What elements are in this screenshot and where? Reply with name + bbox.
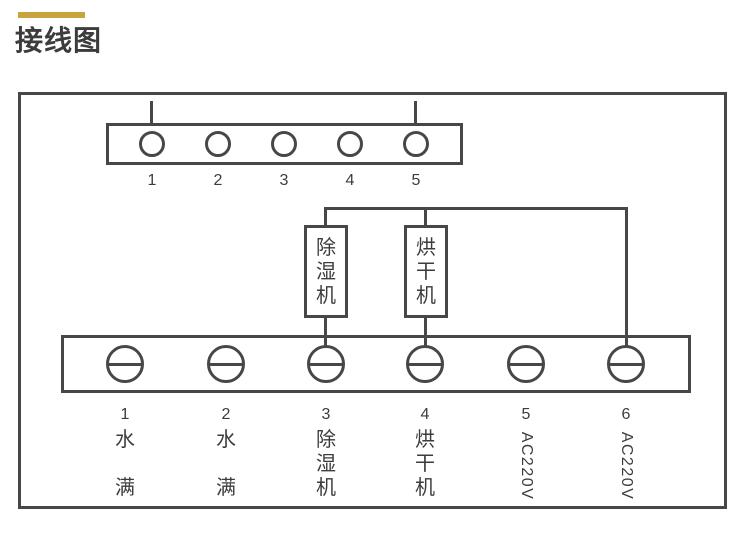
terminal-label-char: 机 [406,477,444,499]
terminal-label-char: 满 [207,477,245,499]
connector-hole-1 [139,131,165,157]
screw-terminal-5 [507,345,545,383]
device-label-char: 湿 [316,262,336,282]
bottom-terminal-number: 3 [307,406,345,423]
terminal-label-ac220v: AC220V [517,427,535,505]
screw-terminal-1 [106,345,144,383]
terminal-label-char: 干 [406,453,444,475]
screw-slot-icon [310,363,342,366]
screw-terminal-2 [207,345,245,383]
page: 接线图 1 2 3 4 5 除 湿 机 烘 干 机 1 2 3 4 5 6 水 [0,0,750,541]
wire-stub-dehumidifier [324,207,327,226]
device-box-dehumidifier: 除 湿 机 [304,225,348,318]
top-terminal-number: 3 [271,172,297,190]
terminal-label-char: 烘 [406,429,444,451]
terminal-label-char: 水 [207,429,245,451]
connector-hole-3 [271,131,297,157]
device-label-char: 干 [416,262,436,282]
device-label-char: 烘 [416,238,436,258]
screw-terminal-3 [307,345,345,383]
screw-terminal-4 [406,345,444,383]
terminal-label-char: 水 [106,429,144,451]
bottom-terminal-number: 5 [507,406,545,423]
wire-stub-dryer [424,207,427,226]
connector-hole-5 [403,131,429,157]
device-label-char: 机 [316,286,336,306]
bottom-terminal-strip [61,335,691,393]
bottom-terminal-number: 1 [106,406,144,423]
top-terminal-number: 4 [337,172,363,190]
pin-marker-right [414,101,417,124]
screw-slot-icon [409,363,441,366]
page-title: 接线图 [15,24,102,58]
top-terminal-number: 2 [205,172,231,190]
screw-slot-icon [510,363,542,366]
terminal-label-char: 湿 [307,453,345,475]
connector-hole-4 [337,131,363,157]
device-label-char: 除 [316,238,336,258]
screw-slot-icon [610,363,642,366]
pin-marker-left [150,101,153,124]
device-box-dryer: 烘 干 机 [404,225,448,318]
bottom-terminal-number: 2 [207,406,245,423]
bottom-terminal-number: 4 [406,406,444,423]
connector-hole-2 [205,131,231,157]
title-accent-bar [18,12,85,18]
terminal-label-char: 满 [106,477,144,499]
top-terminal-number: 5 [403,172,429,190]
terminal-label-char: 除 [307,429,345,451]
wire-drop-ac220v [625,207,628,349]
terminal-label-ac220v: AC220V [617,427,635,505]
terminal-label-char: 机 [307,477,345,499]
screw-slot-icon [210,363,242,366]
wire-bus-horizontal [324,207,628,210]
top-terminal-number: 1 [139,172,165,190]
screw-slot-icon [109,363,141,366]
device-label-char: 机 [416,286,436,306]
screw-terminal-6 [607,345,645,383]
bottom-terminal-number: 6 [607,406,645,423]
